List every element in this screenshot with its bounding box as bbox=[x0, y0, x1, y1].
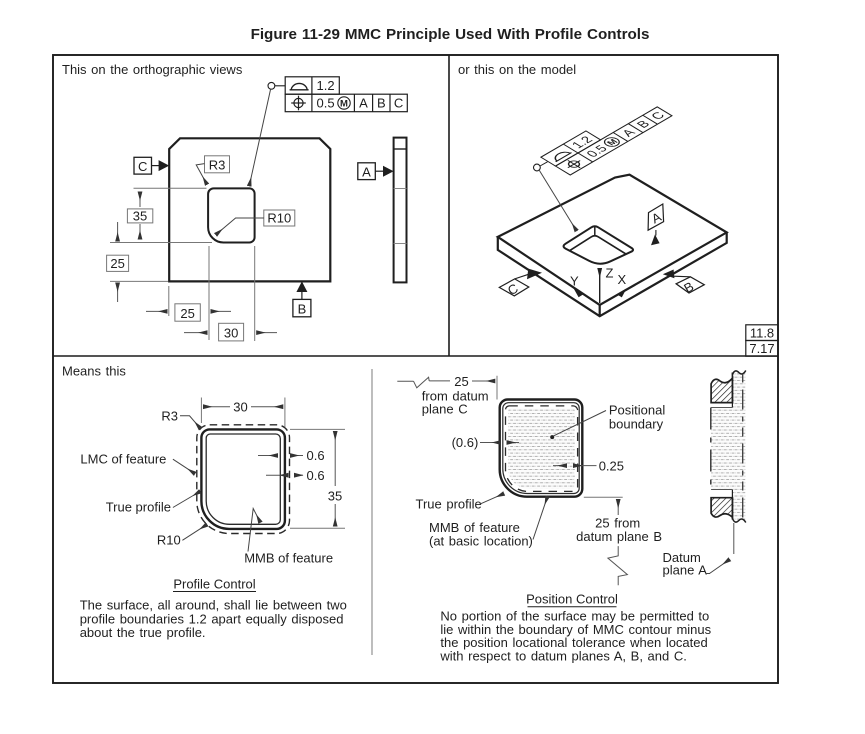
svg-text:B: B bbox=[681, 279, 696, 296]
svg-text:Figure 11-29 MMC Principle Use: Figure 11-29 MMC Principle Used With Pro… bbox=[251, 26, 650, 43]
svg-text:A: A bbox=[649, 209, 664, 226]
svg-text:datum plane B: datum plane B bbox=[576, 529, 662, 544]
svg-text:C: C bbox=[138, 159, 147, 174]
svg-text:30: 30 bbox=[224, 325, 238, 340]
svg-text:Means this: Means this bbox=[62, 364, 126, 379]
svg-text:about the true profile.: about the true profile. bbox=[80, 625, 206, 640]
svg-text:B: B bbox=[377, 96, 386, 111]
svg-text:30: 30 bbox=[233, 399, 247, 414]
svg-text:X: X bbox=[618, 272, 627, 287]
svg-text:Positional: Positional bbox=[609, 403, 665, 418]
svg-text:B: B bbox=[298, 301, 307, 316]
svg-text:or this on the model: or this on the model bbox=[458, 62, 576, 77]
svg-text:0.6: 0.6 bbox=[307, 468, 325, 483]
svg-text:1.2: 1.2 bbox=[317, 78, 335, 93]
svg-text:(0.6): (0.6) bbox=[452, 435, 479, 450]
svg-text:(at basic location): (at basic location) bbox=[429, 533, 533, 548]
svg-text:A: A bbox=[359, 96, 368, 111]
svg-text:R10: R10 bbox=[267, 211, 291, 226]
svg-text:0.25: 0.25 bbox=[599, 458, 624, 473]
svg-text:R10: R10 bbox=[157, 533, 181, 548]
svg-text:25: 25 bbox=[180, 306, 194, 321]
svg-text:35: 35 bbox=[328, 488, 342, 503]
svg-text:0.5: 0.5 bbox=[317, 96, 335, 111]
svg-text:R3: R3 bbox=[209, 158, 226, 173]
svg-text:True profile: True profile bbox=[416, 497, 482, 512]
svg-text:M: M bbox=[340, 99, 348, 110]
svg-text:Y: Y bbox=[570, 274, 579, 289]
svg-text:Z: Z bbox=[606, 266, 614, 281]
svg-text:R3: R3 bbox=[161, 409, 178, 424]
svg-text:The surface, all around, shall: The surface, all around, shall lie betwe… bbox=[80, 598, 347, 613]
svg-text:LMC of feature: LMC of feature bbox=[80, 452, 166, 467]
svg-text:Profile Control: Profile Control bbox=[173, 577, 255, 592]
svg-text:C: C bbox=[505, 281, 521, 299]
svg-text:True profile: True profile bbox=[106, 500, 171, 515]
svg-text:MMB of feature: MMB of feature bbox=[244, 551, 333, 566]
svg-text:plane C: plane C bbox=[422, 401, 468, 416]
svg-text:boundary: boundary bbox=[609, 416, 664, 431]
svg-text:plane A: plane A bbox=[663, 563, 708, 578]
svg-text:Position Control: Position Control bbox=[526, 592, 618, 607]
svg-text:7.17: 7.17 bbox=[749, 341, 774, 356]
svg-text:C: C bbox=[394, 96, 403, 111]
svg-text:11.8: 11.8 bbox=[750, 326, 774, 341]
svg-text:35: 35 bbox=[133, 209, 147, 224]
svg-text:0.6: 0.6 bbox=[307, 448, 325, 463]
svg-text:25: 25 bbox=[454, 374, 468, 389]
svg-text:25: 25 bbox=[110, 256, 124, 271]
svg-text:A: A bbox=[362, 164, 371, 179]
svg-text:with respect to datum planes A: with respect to datum planes A, B, and C… bbox=[439, 648, 686, 663]
svg-text:This on the orthographic views: This on the orthographic views bbox=[62, 62, 243, 77]
